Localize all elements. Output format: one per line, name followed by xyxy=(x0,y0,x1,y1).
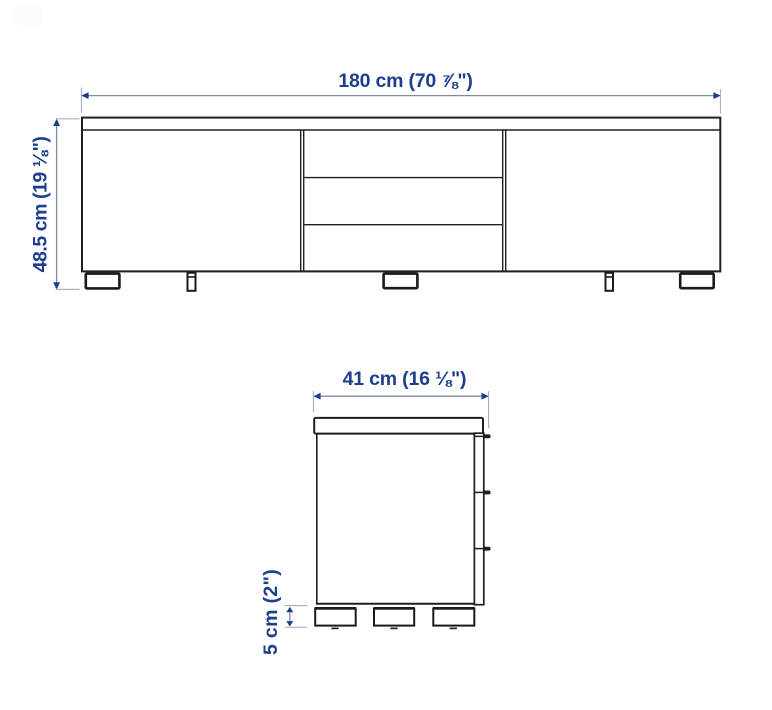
svg-text:48.5 cm (19 ⅛"): 48.5 cm (19 ⅛") xyxy=(30,137,52,273)
svg-text:5 cm (2"): 5 cm (2") xyxy=(260,569,282,655)
svg-text:41 cm (16 ⅛"): 41 cm (16 ⅛") xyxy=(343,368,467,390)
svg-text:180 cm (70 ⅞"): 180 cm (70 ⅞") xyxy=(338,70,472,92)
